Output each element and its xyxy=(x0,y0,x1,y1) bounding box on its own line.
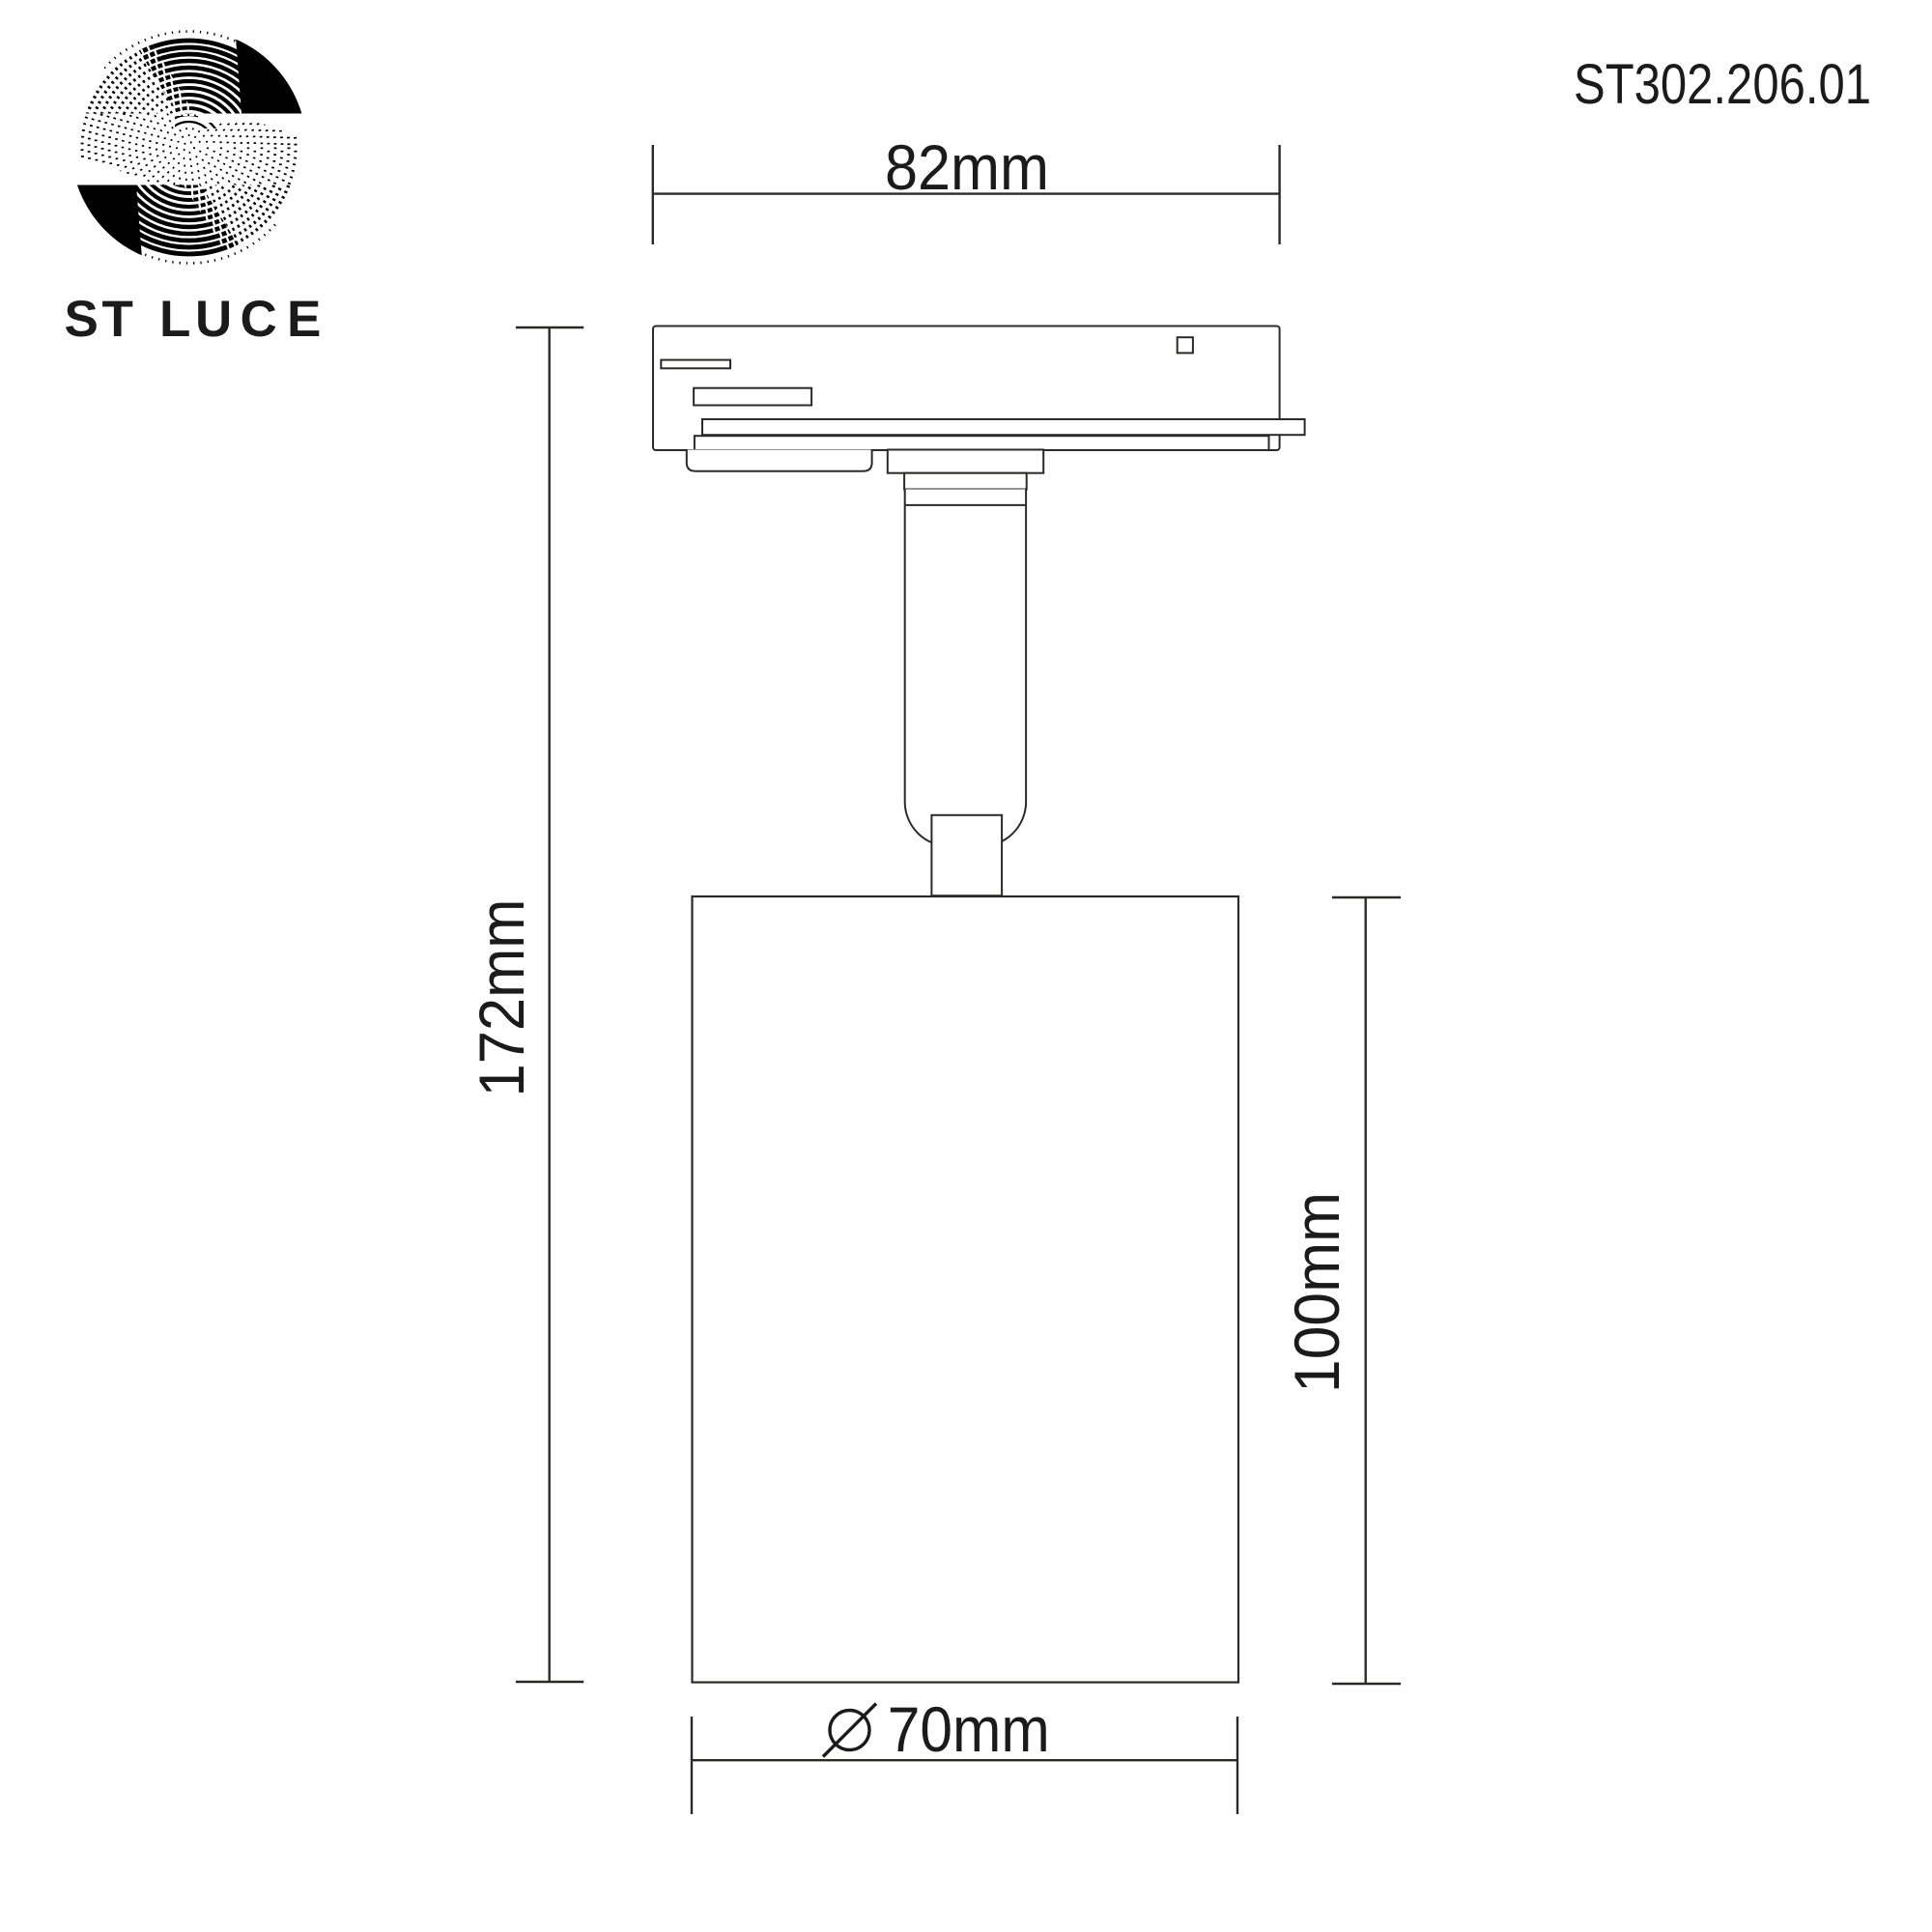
svg-text:ST302.206.01: ST302.206.01 xyxy=(1574,53,1871,116)
svg-text:STLUCE: STLUCE xyxy=(65,291,322,348)
svg-text:100mm: 100mm xyxy=(1281,1192,1352,1393)
svg-text:70mm: 70mm xyxy=(888,1693,1050,1765)
svg-text:172mm: 172mm xyxy=(466,899,537,1097)
svg-text:82mm: 82mm xyxy=(885,131,1049,203)
